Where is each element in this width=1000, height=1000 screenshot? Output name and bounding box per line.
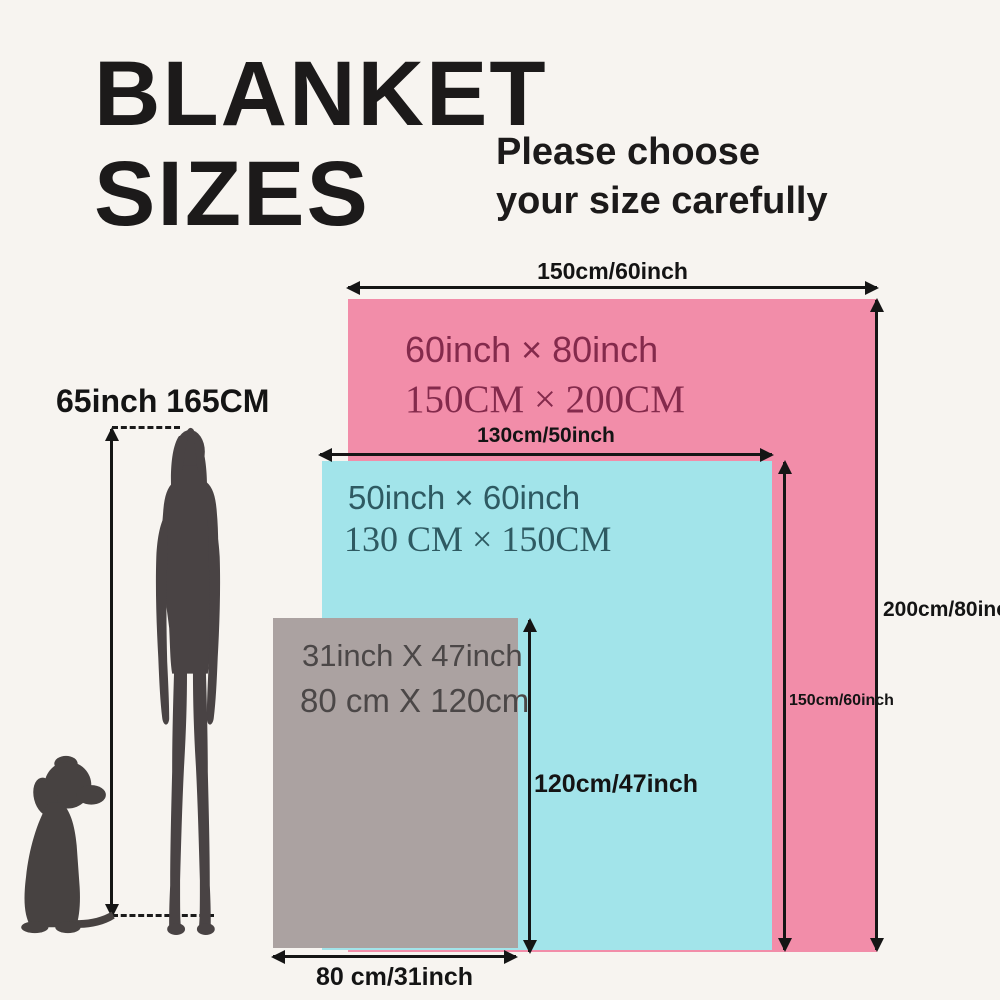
blanket-medium-cm-label: 130 CM × 150CM <box>344 518 611 560</box>
small-width-measure-label: 80 cm/31inch <box>273 963 516 992</box>
woman-silhouette-shape <box>156 428 220 935</box>
subtitle-line2: your size carefully <box>496 177 828 226</box>
blanket-small-inch-label: 31inch X 47inch <box>302 638 523 674</box>
page-title-line2: SIZES <box>94 148 548 240</box>
small-height-measure-arrow <box>528 620 531 952</box>
large-width-measure-label: 150cm/60inch <box>348 258 877 285</box>
blanket-small: 31inch X 47inch 80 cm X 120cm <box>273 618 518 948</box>
medium-height-measure-arrow <box>783 462 786 950</box>
small-width-measure-arrow <box>273 955 516 958</box>
person-height-label: 65inch 165CM <box>56 383 269 420</box>
dog-silhouette-shape <box>21 756 114 933</box>
large-width-measure-arrow <box>348 286 877 289</box>
woman-silhouette <box>138 424 238 939</box>
medium-width-measure-arrow <box>320 453 772 456</box>
subtitle: Please choose your size carefully <box>496 128 828 225</box>
large-height-measure-label: 200cm/80inch <box>883 598 1000 622</box>
page-title-line1: BLANKET <box>94 48 548 140</box>
page-title: BLANKET SIZES <box>94 48 548 240</box>
medium-width-measure-label: 130cm/50inch <box>320 424 772 448</box>
blanket-small-cm-label: 80 cm X 120cm <box>300 682 529 720</box>
blanket-medium-inch-label: 50inch × 60inch <box>348 479 580 517</box>
dog-silhouette <box>10 752 120 937</box>
subtitle-line1: Please choose <box>496 128 828 177</box>
large-height-measure-arrow <box>875 300 878 950</box>
blanket-size-infographic: BLANKET SIZES Please choose your size ca… <box>0 0 1000 1000</box>
medium-height-measure-label: 150cm/60inch <box>789 692 894 710</box>
blanket-large-cm-label: 150CM × 200CM <box>405 377 685 422</box>
small-height-measure-label: 120cm/47inch <box>534 770 698 799</box>
blanket-large-inch-label: 60inch × 80inch <box>405 329 658 371</box>
